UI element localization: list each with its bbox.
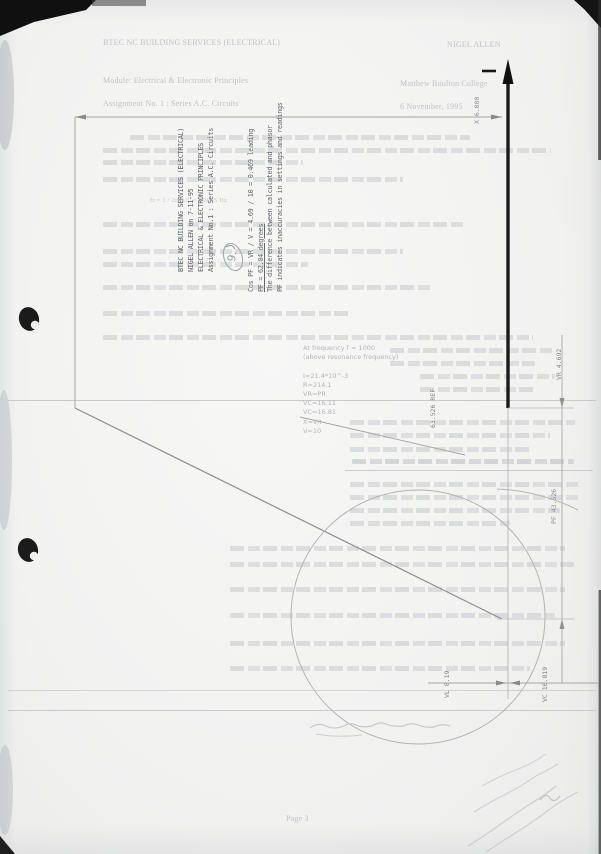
- scan-corner-bottom-left: [0, 836, 15, 854]
- scan-streak: [92, 0, 146, 6]
- punch-hole: [15, 536, 41, 564]
- scan-edge-smudge: [0, 745, 13, 835]
- scanned-page: BTEC NC BUILDING SERVICES (ELECTRICAL) N…: [0, 0, 601, 854]
- scan-corner-top-right: [574, 0, 601, 28]
- scan-corner-top-left: [0, 0, 96, 36]
- scan-artifacts: [0, 0, 601, 854]
- scan-edge-smudge: [0, 40, 14, 150]
- scan-edge-smudge: [0, 390, 12, 530]
- punch-hole: [16, 305, 42, 333]
